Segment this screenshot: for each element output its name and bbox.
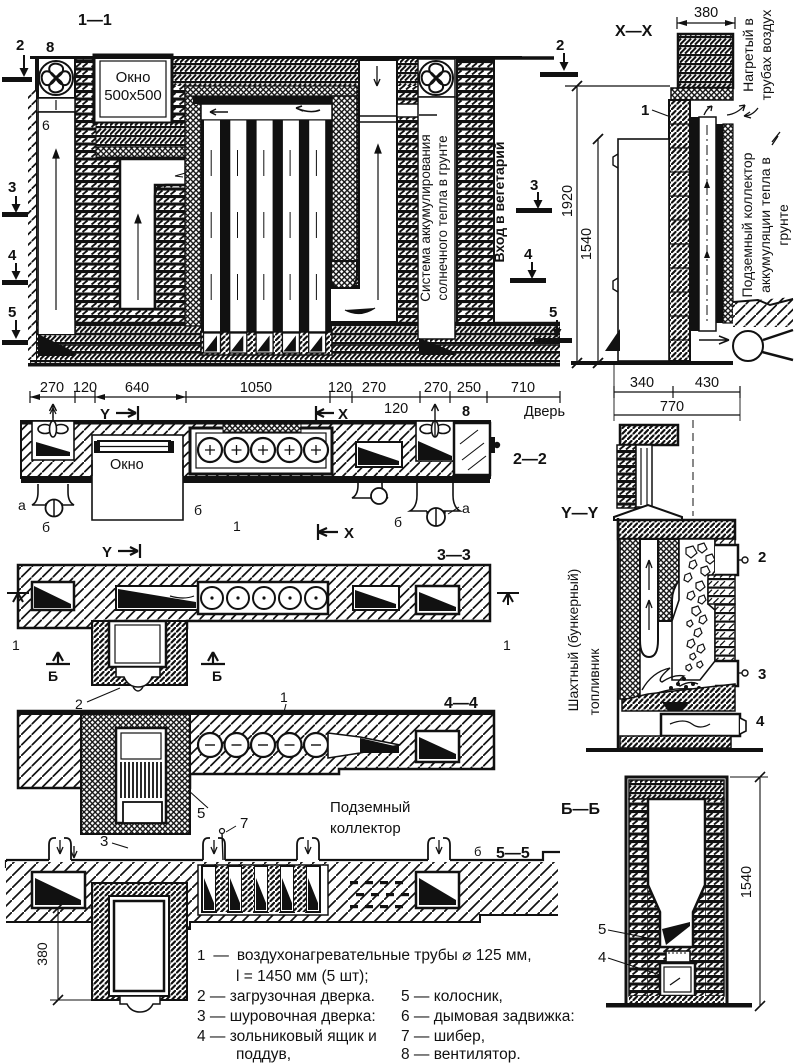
svg-text:Б: Б <box>212 668 222 684</box>
svg-text:Окно: Окно <box>110 457 144 473</box>
svg-text:340: 340 <box>630 375 654 391</box>
svg-text:3: 3 <box>758 666 766 683</box>
svg-text:4: 4 <box>756 713 765 730</box>
svg-text:Б: Б <box>48 668 58 684</box>
svg-text:6 — дымовая задвижка:: 6 — дымовая задвижка: <box>401 1008 575 1025</box>
svg-text:1540: 1540 <box>579 228 595 260</box>
svg-text:3—3: 3—3 <box>437 547 471 564</box>
svg-text:Y—Y: Y—Y <box>561 505 599 522</box>
svg-text:2—2: 2—2 <box>513 451 547 468</box>
svg-text:3: 3 <box>100 833 108 850</box>
svg-text:Подземный коллектор: Подземный коллектор <box>739 152 755 297</box>
svg-text:Дверь: Дверь <box>524 404 565 420</box>
svg-text:Б—Б: Б—Б <box>561 801 600 818</box>
svg-text:2: 2 <box>758 549 766 566</box>
svg-text:5: 5 <box>549 304 557 321</box>
svg-text:б: б <box>474 844 481 859</box>
svg-text:3: 3 <box>530 177 538 194</box>
svg-text:б: б <box>42 519 50 535</box>
svg-text:Окно: Окно <box>116 69 151 86</box>
svg-text:6: 6 <box>42 117 50 133</box>
svg-text:5: 5 <box>197 805 205 822</box>
svg-text:380: 380 <box>694 5 718 21</box>
svg-text:500х500: 500х500 <box>104 87 162 104</box>
svg-text:270: 270 <box>362 380 386 396</box>
svg-text:4: 4 <box>598 949 606 966</box>
svg-text:трубах воздух: трубах воздух <box>758 10 774 101</box>
svg-text:8: 8 <box>46 39 54 56</box>
svg-text:1: 1 <box>641 102 649 119</box>
svg-text:1: 1 <box>503 637 511 653</box>
svg-text:250: 250 <box>457 380 481 396</box>
svg-text:1: 1 <box>233 518 241 534</box>
svg-text:а: а <box>462 500 470 516</box>
svg-text:2: 2 <box>75 696 83 712</box>
svg-text:X—X: X—X <box>615 23 653 40</box>
svg-text:1—воздухонагревательные трубы: 1—воздухонагревательные трубы ⌀ 125 мм, <box>197 947 532 964</box>
svg-text:б: б <box>194 502 202 518</box>
svg-text:5 — колосник,: 5 — колосник, <box>401 988 503 1005</box>
svg-text:Подземный: Подземный <box>330 799 410 816</box>
svg-text:Шахтный (бункерный): Шахтный (бункерный) <box>565 569 581 712</box>
svg-text:l = 1450 мм (5 шт);: l = 1450 мм (5 шт); <box>236 968 369 985</box>
svg-text:270: 270 <box>424 380 448 396</box>
svg-text:1540: 1540 <box>739 866 755 898</box>
svg-text:7: 7 <box>240 815 248 832</box>
svg-text:коллектор: коллектор <box>330 820 401 837</box>
svg-text:аккумуляции тепла в: аккумуляции тепла в <box>757 157 773 293</box>
svg-text:430: 430 <box>695 375 719 391</box>
svg-text:1050: 1050 <box>240 380 272 396</box>
svg-text:770: 770 <box>660 399 684 415</box>
svg-text:5: 5 <box>8 304 16 321</box>
svg-text:грунте: грунте <box>775 204 791 246</box>
svg-text:4—4: 4—4 <box>444 695 478 712</box>
svg-text:7 — шибер,: 7 — шибер, <box>401 1028 485 1045</box>
svg-text:солнечного тепла в грунте: солнечного тепла в грунте <box>435 135 450 300</box>
svg-text:3 — шуровочная дверка:: 3 — шуровочная дверка: <box>197 1008 376 1025</box>
svg-text:5: 5 <box>598 921 606 938</box>
svg-text:270: 270 <box>40 380 64 396</box>
svg-text:б: б <box>394 514 402 530</box>
svg-text:2: 2 <box>16 37 24 54</box>
svg-text:а: а <box>18 497 26 513</box>
svg-text:1—1: 1—1 <box>78 12 112 29</box>
svg-text:поддув,: поддув, <box>236 1046 291 1063</box>
svg-text:4: 4 <box>524 246 533 263</box>
svg-text:8 — вентилятор.: 8 — вентилятор. <box>401 1046 521 1063</box>
svg-text:120: 120 <box>73 380 97 396</box>
svg-text:X: X <box>344 525 354 542</box>
svg-text:4 — зольниковый ящик и: 4 — зольниковый ящик и <box>197 1028 377 1045</box>
svg-text:1920: 1920 <box>560 185 576 217</box>
svg-text:2 — загрузочная дверка.: 2 — загрузочная дверка. <box>197 988 375 1005</box>
svg-text:Нагретый в: Нагретый в <box>740 18 756 92</box>
svg-text:Вход в вегетарий: Вход в вегетарий <box>491 141 507 262</box>
svg-text:380: 380 <box>34 942 50 966</box>
svg-text:Y: Y <box>102 544 112 561</box>
svg-text:3: 3 <box>8 179 16 196</box>
svg-text:640: 640 <box>125 380 149 396</box>
svg-text:8: 8 <box>462 404 470 420</box>
svg-text:710: 710 <box>511 380 535 396</box>
svg-text:4: 4 <box>8 247 17 264</box>
svg-text:Система аккумулирования: Система аккумулирования <box>418 134 433 301</box>
svg-text:1: 1 <box>12 637 20 653</box>
svg-text:120: 120 <box>384 401 408 417</box>
svg-text:5—5: 5—5 <box>496 845 530 862</box>
svg-text:топливник: топливник <box>586 648 602 716</box>
svg-text:120: 120 <box>328 380 352 396</box>
svg-text:1: 1 <box>280 689 288 705</box>
svg-text:2: 2 <box>556 37 564 54</box>
